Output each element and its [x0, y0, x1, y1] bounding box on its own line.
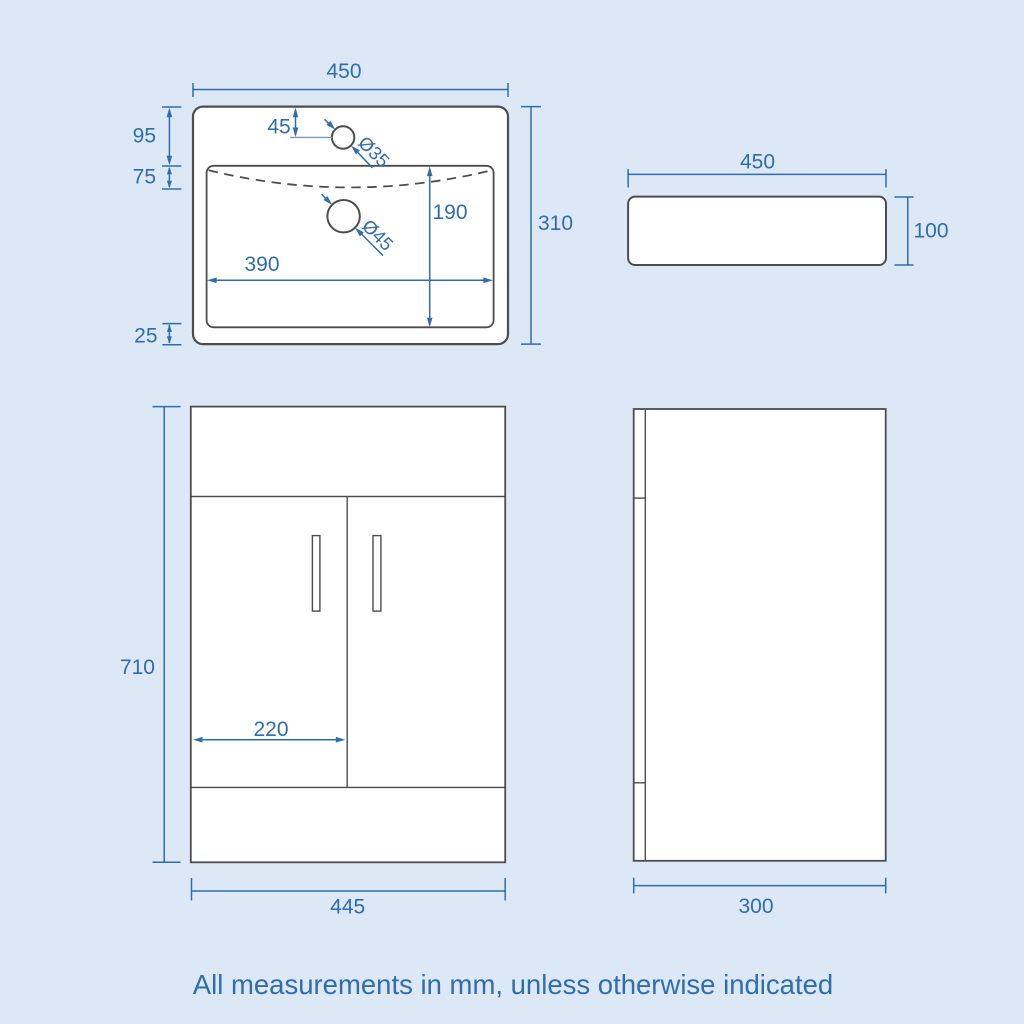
svg-text:300: 300 [738, 895, 773, 918]
svg-text:95: 95 [133, 125, 156, 148]
svg-text:25: 25 [134, 325, 157, 348]
svg-text:710: 710 [120, 656, 155, 679]
svg-text:45: 45 [267, 116, 290, 139]
svg-text:390: 390 [244, 253, 279, 276]
svg-text:310: 310 [538, 212, 573, 235]
svg-text:100: 100 [914, 220, 949, 243]
svg-text:450: 450 [740, 151, 775, 174]
svg-text:220: 220 [253, 718, 288, 741]
svg-text:75: 75 [133, 166, 156, 189]
svg-text:450: 450 [326, 60, 361, 83]
svg-text:445: 445 [330, 896, 365, 919]
svg-text:190: 190 [433, 201, 468, 224]
svg-text:All measurements in mm, unless: All measurements in mm, unless otherwise… [193, 969, 833, 1000]
